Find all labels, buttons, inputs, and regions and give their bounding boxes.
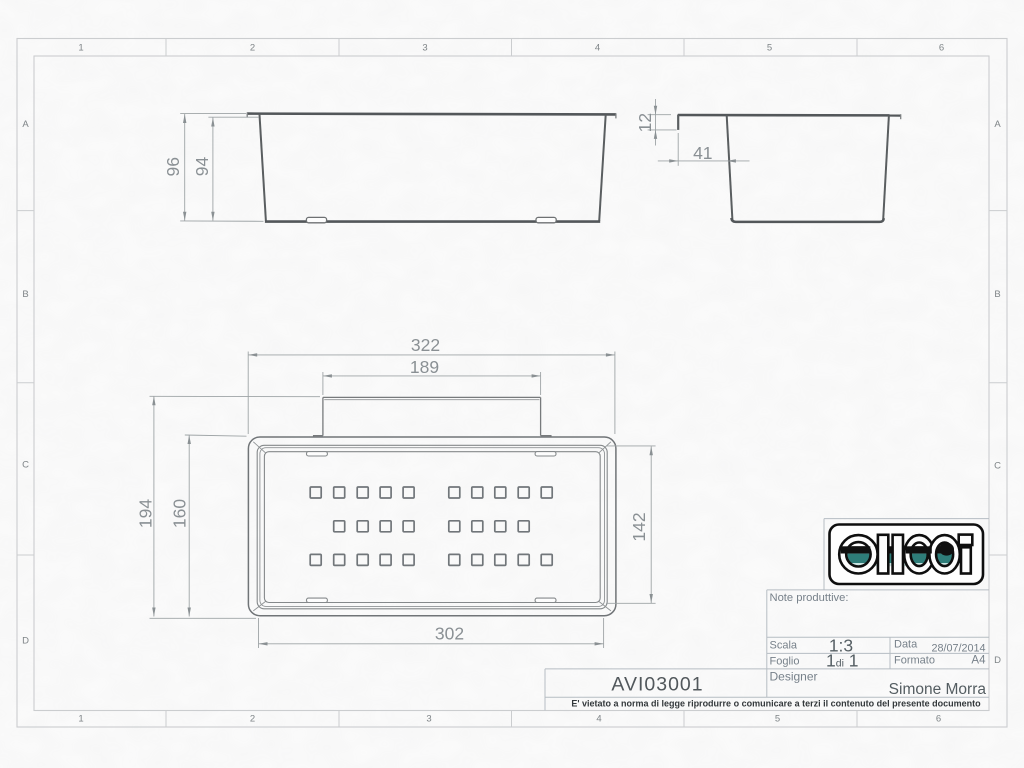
svg-text:Designer: Designer	[770, 670, 818, 684]
svg-text:C: C	[994, 461, 1001, 472]
svg-text:322: 322	[411, 335, 440, 355]
svg-text:D: D	[994, 655, 1001, 666]
svg-text:B: B	[994, 289, 1000, 300]
svg-text:2: 2	[250, 714, 255, 725]
svg-text:28/07/2014: 28/07/2014	[931, 643, 985, 655]
svg-text:12: 12	[635, 113, 655, 132]
svg-text:E' vietato a norma di legge ri: E' vietato a norma di legge riprodurre o…	[571, 699, 981, 709]
svg-text:5: 5	[767, 43, 772, 54]
svg-text:96: 96	[163, 157, 183, 176]
svg-text:2: 2	[250, 43, 255, 54]
svg-text:302: 302	[435, 623, 464, 643]
svg-text:A: A	[22, 119, 29, 130]
svg-text:94: 94	[192, 157, 212, 177]
svg-text:C: C	[22, 460, 29, 471]
svg-text:1: 1	[78, 43, 83, 54]
svg-text:Scala: Scala	[770, 640, 798, 652]
svg-text:1: 1	[78, 714, 83, 725]
svg-text:189: 189	[410, 357, 439, 377]
svg-text:AVI03001: AVI03001	[611, 674, 703, 696]
svg-text:142: 142	[629, 512, 649, 541]
svg-text:5: 5	[775, 714, 780, 725]
svg-text:A: A	[994, 119, 1001, 130]
svg-text:Foglio: Foglio	[770, 656, 800, 668]
svg-text:6: 6	[936, 714, 941, 725]
svg-text:160: 160	[170, 499, 190, 528]
svg-text:3: 3	[426, 714, 431, 725]
svg-text:41: 41	[693, 143, 712, 163]
svg-text:B: B	[22, 289, 28, 300]
svg-text:Simone Morra: Simone Morra	[889, 681, 987, 698]
svg-text:A4: A4	[971, 655, 986, 667]
svg-text:3: 3	[422, 43, 427, 54]
svg-text:Note produttive:: Note produttive:	[770, 592, 849, 604]
svg-text:D: D	[22, 636, 29, 647]
svg-text:194: 194	[136, 499, 156, 528]
svg-text:Data: Data	[894, 639, 918, 651]
svg-text:Formato: Formato	[894, 655, 935, 667]
svg-text:4: 4	[596, 714, 601, 725]
svg-text:6: 6	[939, 43, 944, 54]
svg-text:4: 4	[595, 43, 600, 54]
